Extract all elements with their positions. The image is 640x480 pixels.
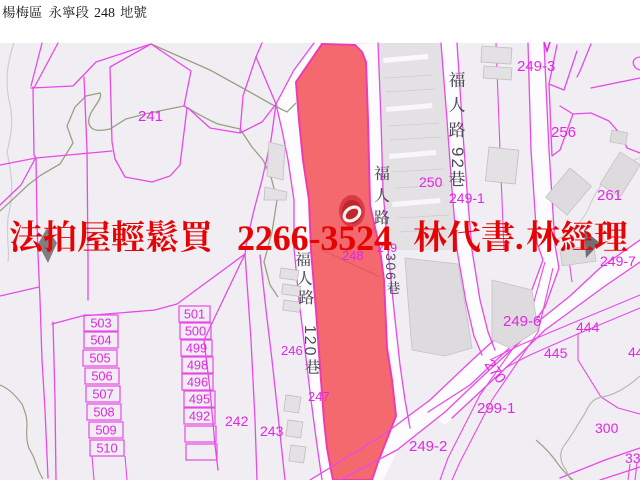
svg-text:445: 445 [544,345,568,361]
svg-text:33: 33 [625,450,640,466]
svg-text:444: 444 [576,319,600,335]
svg-text:498: 498 [187,358,208,373]
svg-text:507: 507 [92,387,113,402]
svg-text:495: 495 [189,392,210,407]
svg-text:506: 506 [91,369,112,384]
svg-text:44: 44 [628,344,640,360]
svg-text:120: 120 [301,325,318,357]
svg-text:500: 500 [185,324,206,339]
svg-text:508: 508 [93,405,114,420]
svg-text:300: 300 [595,420,619,436]
svg-text:249-1: 249-1 [449,190,485,206]
svg-text:243: 243 [260,423,284,439]
svg-text:250: 250 [419,174,443,190]
svg-text:246: 246 [281,343,303,358]
svg-text:503: 503 [90,316,111,331]
svg-text:261: 261 [597,187,622,204]
svg-text:492: 492 [189,409,210,424]
svg-text:505: 505 [89,351,110,366]
svg-text:510: 510 [96,441,117,456]
svg-text:499: 499 [186,341,207,356]
svg-text:249-3: 249-3 [517,58,555,75]
svg-text:.: . [515,220,524,257]
svg-text:241: 241 [138,108,163,125]
svg-text:299-1: 299-1 [477,400,515,417]
svg-text:2266-3524: 2266-3524 [237,218,392,258]
svg-text:509: 509 [95,423,116,438]
svg-text:249-2: 249-2 [409,438,447,455]
svg-text:92: 92 [448,147,467,170]
svg-text:249-6: 249-6 [503,313,541,330]
svg-text:248: 248 [94,6,115,21]
svg-text:504: 504 [90,333,111,348]
svg-text:249-7: 249-7 [600,253,636,269]
svg-text:242: 242 [225,413,249,429]
svg-text:496: 496 [187,375,208,390]
svg-text:247: 247 [308,389,330,404]
svg-text:256: 256 [551,124,576,141]
svg-text:501: 501 [184,307,205,322]
